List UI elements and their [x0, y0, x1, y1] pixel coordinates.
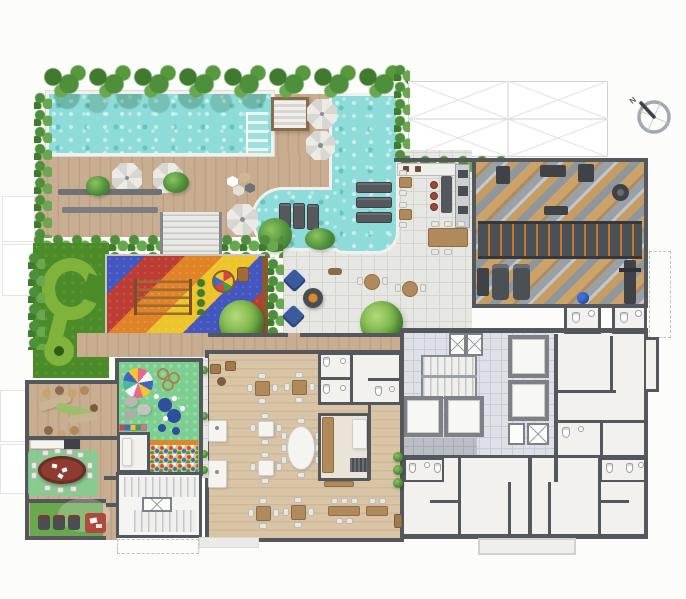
in-pool-lounger — [356, 197, 392, 208]
dining-table — [256, 506, 271, 521]
wall — [300, 333, 404, 337]
side-table — [90, 404, 98, 412]
chair — [281, 432, 287, 440]
umbrella-icon — [306, 131, 335, 160]
coffee-machine-icon — [415, 166, 421, 172]
bar-stool — [430, 181, 438, 189]
long-table — [328, 506, 360, 516]
chair — [261, 413, 269, 419]
site-outline — [2, 196, 35, 242]
chair — [297, 472, 305, 478]
gym-equipment-icon — [578, 164, 594, 182]
activity-table — [167, 409, 181, 423]
chair — [258, 398, 266, 404]
chair — [70, 486, 77, 492]
grill-icon — [350, 458, 367, 472]
sideboard — [324, 481, 354, 487]
apartment-room — [646, 337, 659, 392]
chair — [431, 249, 439, 255]
chair — [431, 221, 439, 227]
canopy-outline — [199, 537, 259, 548]
balance-posts-icon — [196, 278, 206, 315]
chair — [395, 284, 401, 292]
chair — [261, 452, 269, 458]
sun-cabana — [271, 97, 309, 131]
planter-icon — [305, 228, 335, 250]
chair — [284, 383, 290, 391]
hedge — [267, 258, 284, 333]
elevator-shaft — [142, 497, 172, 512]
balance-disc-icon — [612, 184, 629, 201]
wall — [318, 377, 352, 380]
log-bench — [328, 268, 342, 275]
long-table — [366, 506, 388, 516]
bench — [394, 514, 402, 528]
wall — [430, 500, 458, 503]
site-outline — [0, 390, 26, 442]
chair — [247, 384, 253, 392]
hedge — [28, 252, 45, 350]
dining-table — [291, 505, 306, 520]
wall — [558, 420, 648, 423]
climbing-frame-icon — [134, 279, 192, 315]
planter-icon — [393, 478, 403, 488]
wall — [458, 458, 461, 536]
planter-icon — [393, 452, 403, 462]
fire-bowl-icon — [303, 288, 323, 308]
chair — [281, 444, 287, 452]
leisure-pool — [332, 96, 396, 251]
chair — [276, 463, 282, 471]
wall — [508, 482, 511, 536]
elevator-shaft — [449, 333, 466, 356]
bean-bag — [124, 396, 138, 407]
chair — [351, 498, 358, 504]
chair — [297, 418, 305, 424]
toilet-icon — [323, 384, 330, 394]
toilet-icon — [572, 312, 580, 323]
chair — [399, 222, 407, 228]
stair-flight — [134, 510, 196, 532]
chair — [54, 448, 61, 454]
treadmill-icon — [513, 264, 530, 300]
changing-counter — [122, 438, 132, 466]
stair-rail — [421, 375, 477, 378]
wall — [548, 482, 551, 536]
chair — [295, 397, 303, 403]
elevator — [444, 396, 484, 437]
cinema-seat — [38, 515, 50, 530]
decor-dot — [215, 426, 219, 430]
toilet-icon — [323, 357, 330, 367]
compass-rose: N — [628, 92, 676, 140]
service-room — [508, 423, 525, 445]
hedge — [34, 92, 52, 238]
stair-flight — [124, 477, 196, 497]
site-outline — [0, 444, 26, 494]
golf-hole — [54, 346, 64, 356]
chair — [420, 284, 426, 292]
cable-tower-icon — [624, 260, 636, 304]
sink-icon — [340, 385, 346, 391]
floor-plan: N — [0, 0, 686, 599]
wall — [610, 336, 613, 393]
wall — [368, 405, 371, 480]
gym-equipment-icon — [540, 165, 566, 177]
chair — [357, 277, 363, 285]
stool-icon — [163, 416, 168, 421]
pinwheel-rug — [123, 368, 153, 398]
appliance-icon — [458, 170, 468, 178]
sink-icon — [635, 310, 642, 317]
ball-pit — [150, 440, 198, 473]
pouf-icon — [80, 386, 89, 395]
below-outline — [117, 539, 199, 554]
pergola — [408, 81, 608, 157]
side-table — [217, 377, 226, 386]
bistro-table — [399, 177, 412, 188]
training-rig — [478, 221, 642, 259]
sink-icon — [578, 426, 584, 432]
armchair — [225, 361, 236, 371]
climb-hoops-icon — [162, 379, 174, 391]
chair — [31, 462, 37, 469]
planter-icon — [86, 176, 110, 196]
pouf-icon — [42, 389, 51, 398]
chair — [273, 509, 279, 517]
sink-icon — [424, 462, 430, 468]
sink-icon — [389, 386, 395, 392]
patio-table — [364, 274, 380, 290]
chair — [57, 487, 64, 493]
chair — [294, 522, 302, 528]
planter-icon — [163, 172, 189, 193]
hedge — [221, 234, 283, 258]
chair — [281, 456, 287, 464]
wall — [554, 334, 558, 482]
wall — [601, 500, 629, 503]
elevator — [508, 380, 549, 421]
gym-equipment-icon — [477, 268, 489, 296]
in-pool-lounger — [356, 212, 392, 223]
toilet-icon — [626, 463, 633, 473]
cinema-seat — [53, 515, 65, 530]
toilet-icon — [620, 312, 628, 323]
chair — [258, 373, 266, 379]
planter-icon — [393, 465, 403, 475]
deck-bench — [58, 189, 162, 195]
chair — [444, 221, 452, 227]
in-pool-lounger — [356, 182, 392, 193]
gym-equipment-icon — [496, 166, 510, 184]
terrace-outline — [649, 251, 671, 338]
communal-table — [428, 228, 468, 247]
kitchen-counter — [322, 417, 334, 473]
playing-card — [52, 463, 58, 468]
pouf-icon — [172, 427, 180, 435]
oval-table — [287, 426, 315, 470]
stool-icon — [154, 394, 159, 399]
service-shaft — [527, 423, 549, 445]
toilet-icon — [562, 427, 570, 438]
cable-tower-icon — [619, 268, 641, 272]
wall — [400, 328, 648, 333]
elevator — [508, 335, 549, 378]
chair — [272, 384, 278, 392]
appliance-icon — [64, 439, 80, 449]
wall — [104, 476, 116, 480]
chair — [248, 509, 254, 517]
wall — [106, 503, 116, 507]
chair — [250, 463, 256, 471]
bean-bag — [124, 410, 137, 420]
wall — [528, 455, 532, 536]
sink-icon — [340, 358, 346, 364]
toilet-icon — [606, 463, 613, 473]
stool-icon — [172, 396, 177, 401]
chair — [379, 498, 386, 504]
chair — [399, 190, 407, 196]
chair — [444, 249, 452, 255]
outdoor-stairs — [160, 212, 222, 258]
sink-icon — [588, 310, 595, 317]
chair — [87, 472, 93, 479]
chair — [261, 439, 269, 445]
dining-table — [255, 381, 270, 396]
carousel-icon — [212, 270, 235, 293]
chair — [44, 485, 51, 491]
bean-bag — [137, 404, 151, 415]
armchair — [210, 364, 221, 374]
chair — [346, 518, 353, 524]
pouf-icon — [70, 426, 79, 435]
pouf-icon — [55, 386, 64, 395]
in-pool-lounger — [307, 204, 319, 230]
chair — [308, 508, 314, 516]
bistro-table — [399, 209, 412, 220]
chair — [309, 383, 315, 391]
hedge — [394, 64, 410, 160]
chair — [399, 170, 407, 176]
exercise-ball-icon — [577, 292, 589, 304]
bar-stool — [430, 203, 438, 211]
toilet-icon — [375, 386, 382, 396]
toilet-icon — [434, 463, 441, 473]
elevator-shaft — [466, 333, 483, 356]
chair — [261, 478, 269, 484]
chair — [369, 498, 376, 504]
cinema-rug — [85, 513, 106, 533]
chair — [259, 498, 267, 504]
chair — [276, 424, 282, 432]
chair — [294, 497, 302, 503]
toilet-icon — [409, 463, 416, 473]
decor-dot — [215, 470, 219, 474]
pouf-icon — [68, 389, 77, 398]
kitchen-appliances — [352, 419, 367, 449]
wall — [368, 378, 402, 381]
stool-icon — [180, 406, 185, 411]
treadmill-icon — [492, 264, 509, 300]
wall — [25, 380, 117, 384]
chair — [87, 462, 93, 469]
pool-steps — [246, 112, 268, 153]
rug-item — [96, 524, 102, 528]
palm-hedge — [42, 64, 408, 100]
pouf-icon — [158, 424, 166, 432]
bar-counter — [441, 176, 452, 213]
chair — [399, 202, 407, 208]
sink-icon — [638, 462, 644, 468]
dumbbell-rack-icon — [544, 206, 568, 215]
in-pool-lounger — [293, 203, 305, 229]
elevator — [403, 396, 443, 437]
cinema-seat — [68, 515, 80, 530]
wall — [28, 536, 106, 540]
chair — [283, 508, 289, 516]
chair — [259, 523, 267, 529]
chair — [250, 424, 256, 432]
chair — [66, 449, 73, 455]
appliance-icon — [458, 186, 468, 196]
dining-table-white — [258, 421, 274, 437]
chair — [457, 221, 465, 227]
umbrella-icon — [227, 204, 258, 235]
bar-stool — [430, 192, 438, 200]
dining-table-white — [258, 460, 274, 476]
wall — [208, 333, 288, 337]
appliance-icon — [458, 206, 468, 214]
chair — [77, 452, 84, 458]
pouf-icon — [44, 426, 53, 435]
dining-table — [292, 380, 307, 395]
umbrella-icon — [307, 99, 337, 129]
chair — [336, 518, 343, 524]
deck-bench — [62, 207, 158, 213]
chair — [31, 472, 37, 479]
wall — [394, 158, 474, 162]
toy-shelf — [119, 424, 147, 431]
play-toy-icon — [237, 267, 249, 282]
wall — [558, 390, 616, 393]
patio-table — [402, 281, 418, 297]
chair — [42, 450, 49, 456]
chair — [341, 498, 348, 504]
chair — [382, 277, 388, 285]
buffet-counter — [208, 420, 227, 442]
chair — [295, 372, 303, 378]
buffet-counter — [208, 460, 227, 488]
balcony-outline — [478, 538, 576, 555]
chair — [331, 498, 338, 504]
